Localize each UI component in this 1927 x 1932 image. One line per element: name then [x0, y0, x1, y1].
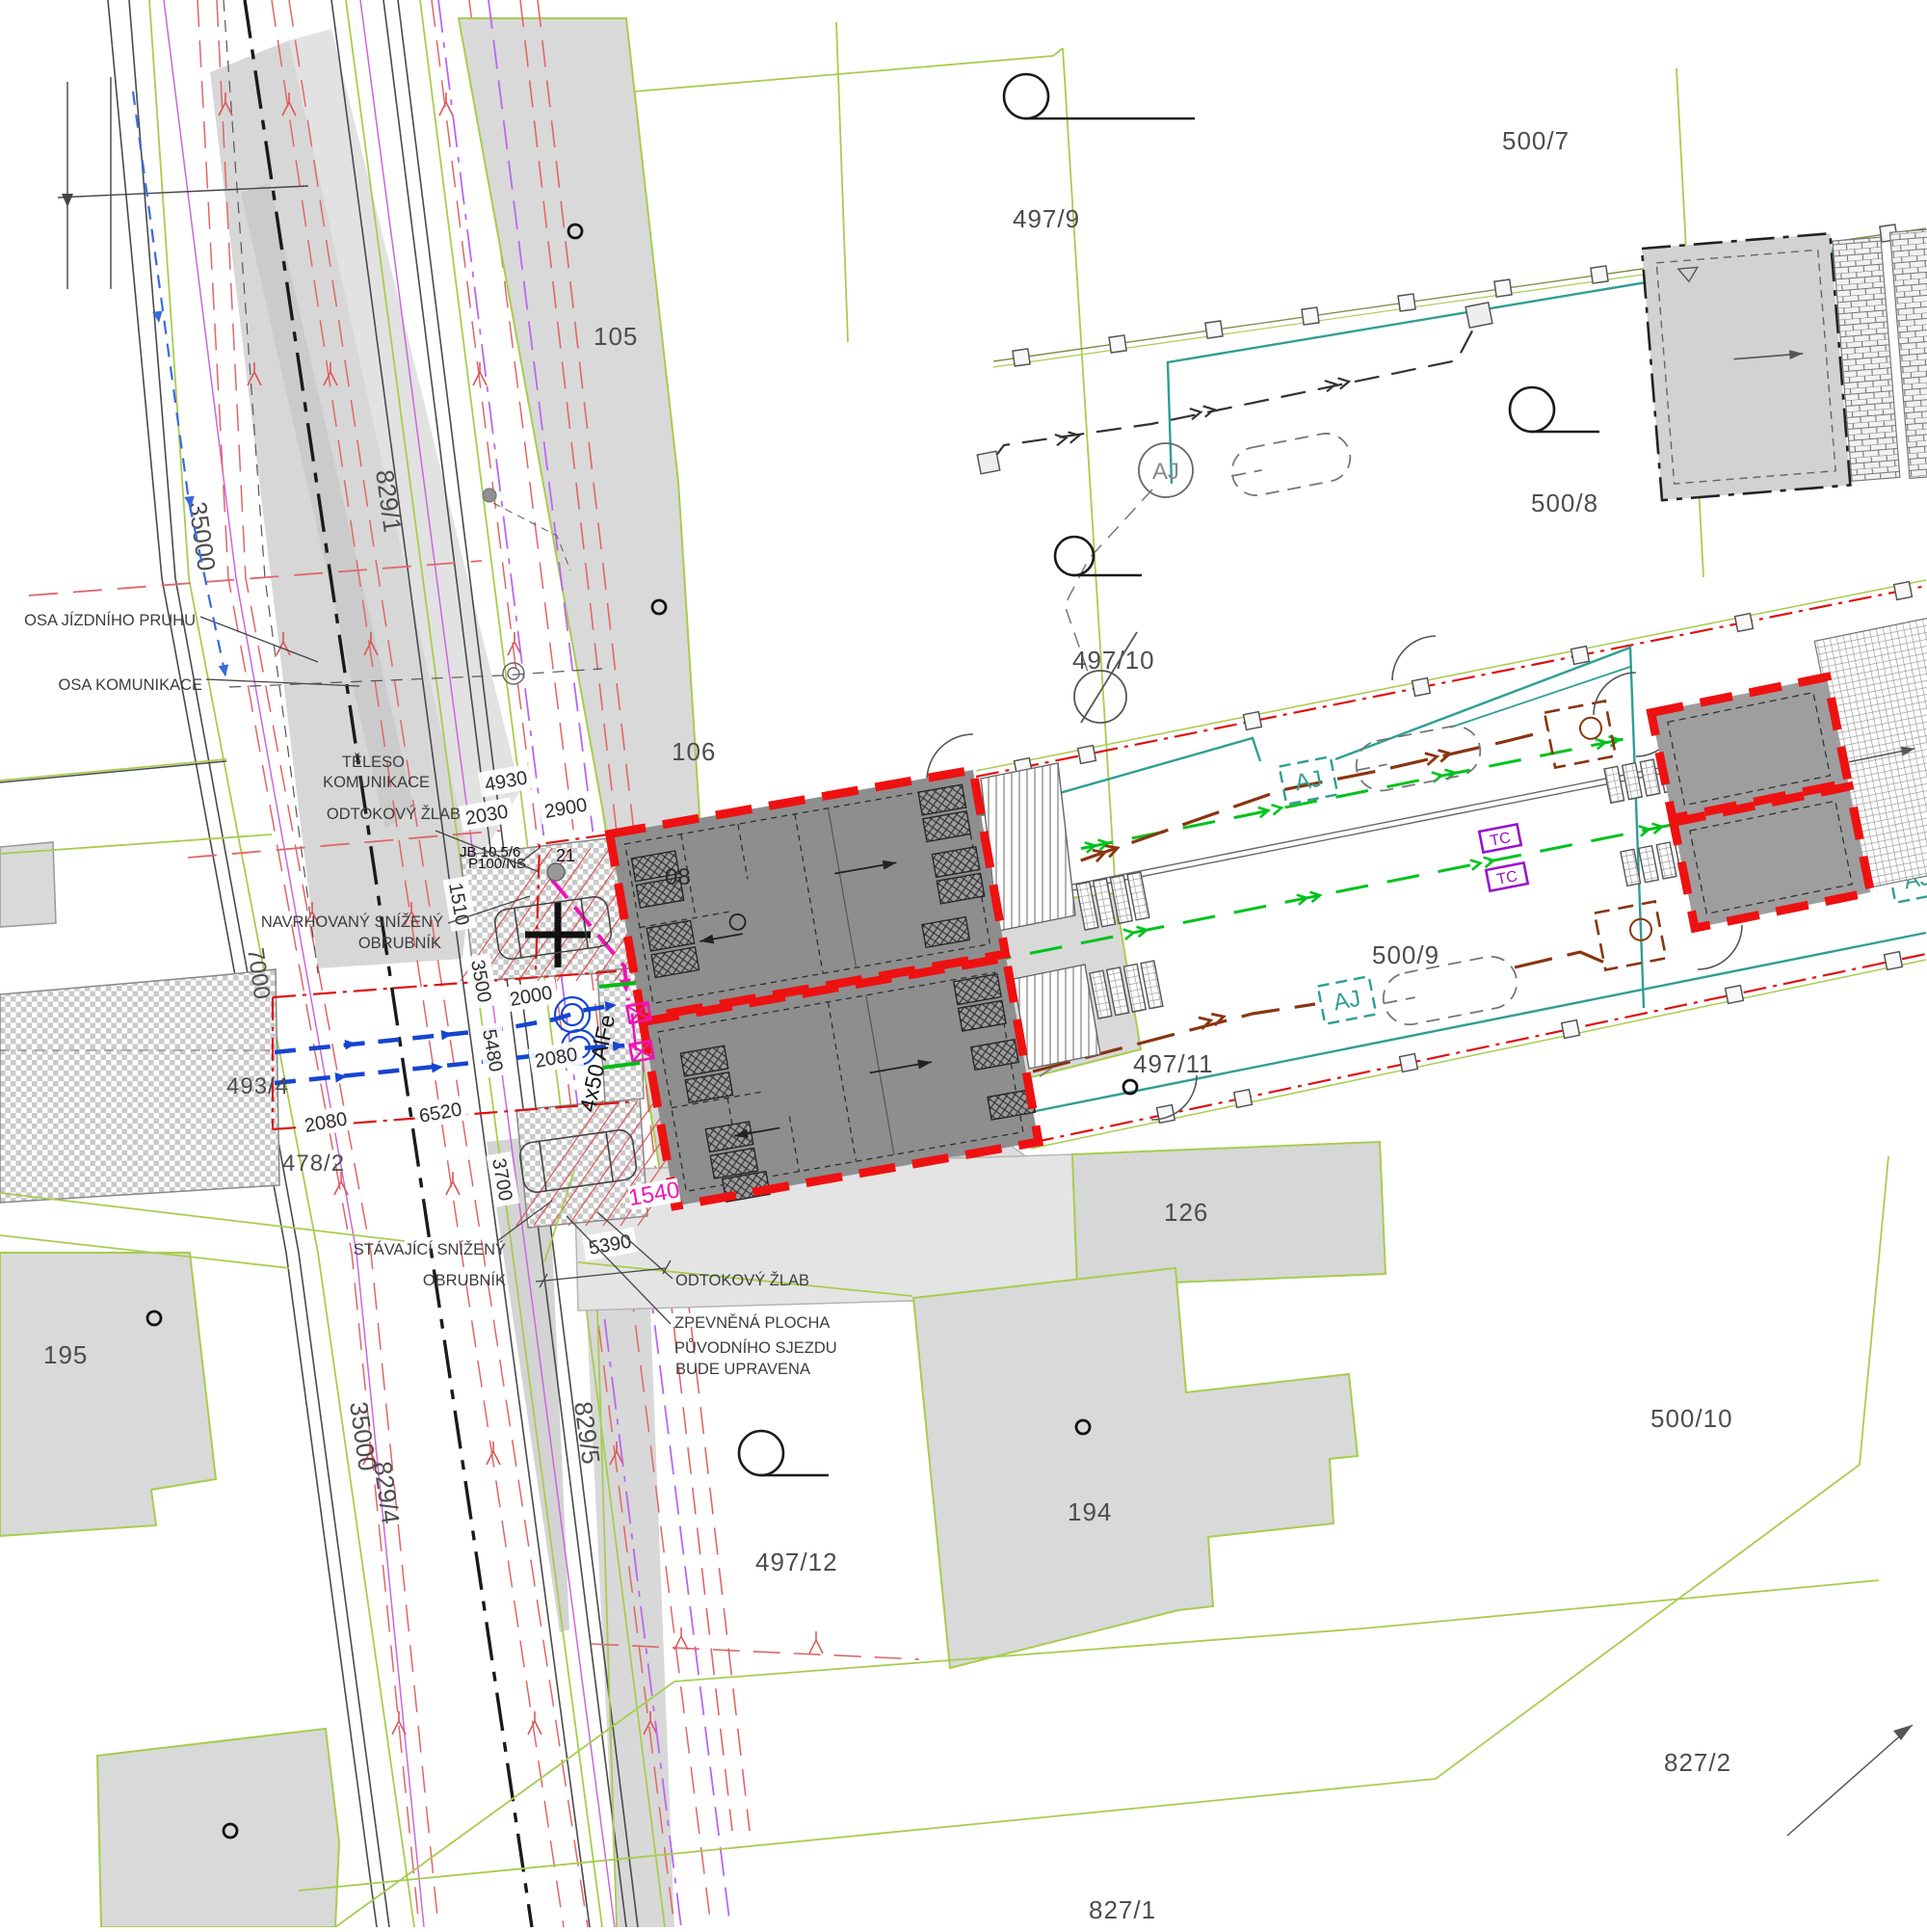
svg-text:827/2: 827/2 — [1664, 1748, 1731, 1777]
svg-text:KOMUNIKACE: KOMUNIKACE — [323, 774, 430, 791]
svg-text:PŮVODNÍHO SJEZDU: PŮVODNÍHO SJEZDU — [674, 1338, 837, 1357]
svg-text:500/8: 500/8 — [1531, 489, 1598, 517]
svg-text:194: 194 — [1068, 1497, 1112, 1526]
svg-text:AJ: AJ — [1332, 986, 1363, 1017]
svg-text:21: 21 — [556, 846, 575, 865]
svg-text:493/4: 493/4 — [226, 1073, 289, 1099]
svg-text:126: 126 — [1164, 1198, 1208, 1227]
svg-text:AJ: AJ — [1293, 766, 1325, 797]
svg-text:NAVRHOVANÝ SNÍŽENÝ: NAVRHOVANÝ SNÍŽENÝ — [261, 913, 443, 931]
svg-text:ODTOKOVÝ ŽLAB: ODTOKOVÝ ŽLAB — [675, 1271, 809, 1289]
svg-text:500/10: 500/10 — [1650, 1404, 1733, 1433]
svg-text:478/2: 478/2 — [282, 1151, 345, 1177]
svg-text:497/12: 497/12 — [755, 1548, 838, 1576]
svg-text:500/9: 500/9 — [1372, 940, 1439, 969]
svg-text:106: 106 — [672, 737, 716, 766]
svg-text:ZPEVNĚNÁ PLOCHA: ZPEVNĚNÁ PLOCHA — [674, 1313, 830, 1332]
svg-text:BUDE UPRAVENA: BUDE UPRAVENA — [675, 1361, 810, 1378]
svg-text:OBRUBNÍK: OBRUBNÍK — [358, 934, 441, 952]
svg-text:STÁVAJÍCÍ SNÍŽENÝ: STÁVAJÍCÍ SNÍŽENÝ — [354, 1240, 506, 1258]
svg-text:497/9: 497/9 — [1013, 204, 1080, 233]
svg-text:105: 105 — [594, 322, 638, 351]
svg-text:OSA KOMUNIKACE: OSA KOMUNIKACE — [59, 676, 202, 694]
svg-text:08: 08 — [665, 864, 691, 890]
svg-text:195: 195 — [43, 1340, 88, 1369]
svg-text:TĚLESO: TĚLESO — [342, 753, 405, 771]
svg-text:500/7: 500/7 — [1502, 126, 1570, 155]
svg-text:ODTOKOVÝ ŽLAB: ODTOKOVÝ ŽLAB — [327, 805, 461, 823]
svg-text:827/1: 827/1 — [1089, 1895, 1156, 1924]
svg-text:OSA JÍZDNÍHO PRUHU: OSA JÍZDNÍHO PRUHU — [24, 611, 196, 629]
svg-text:AJ: AJ — [1152, 459, 1179, 485]
svg-text:497/11: 497/11 — [1133, 1049, 1214, 1078]
svg-text:OBRUBNÍK: OBRUBNÍK — [423, 1271, 506, 1289]
